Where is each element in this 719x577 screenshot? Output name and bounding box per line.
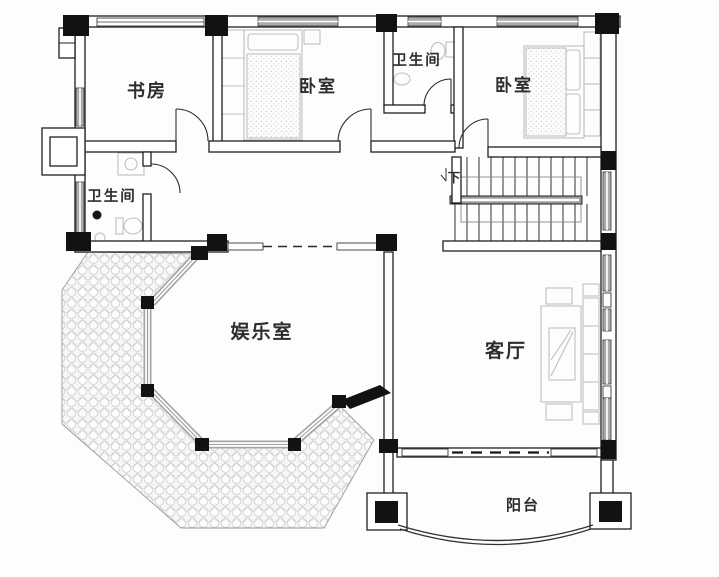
label-bathroom-left: 卫生间: [87, 187, 137, 205]
label-stairs-down: 下: [448, 170, 463, 185]
balcony-railing-curve: [398, 525, 593, 541]
label-bedroom-top: 卧室: [299, 76, 337, 97]
floor-drain-dot: [93, 211, 102, 220]
label-bathroom-top: 卫生间: [392, 51, 442, 69]
terrace-hatch: [62, 252, 374, 528]
bed-right-bedroom: [524, 32, 600, 138]
label-balcony: 阳台: [506, 496, 540, 514]
label-entertainment: 娱乐室: [230, 320, 293, 343]
label-living: 客厅: [485, 339, 527, 362]
floor-plan-drawing: 书房 卧室 卫生间 卧室 卫生间 娱乐室 客厅 阳台 下: [0, 0, 719, 577]
sofa-set: [541, 284, 599, 424]
balcony: [367, 493, 631, 545]
stair-direction-arrow: [441, 168, 446, 181]
doors: [151, 79, 549, 453]
staircase: [441, 157, 587, 242]
bay-windows: [148, 255, 340, 445]
floor-plan: 书房 卧室 卫生间 卧室 卫生间 娱乐室 客厅 阳台 下: [0, 0, 719, 577]
label-bedroom-right: 卧室: [495, 75, 533, 96]
label-study: 书房: [127, 80, 167, 102]
